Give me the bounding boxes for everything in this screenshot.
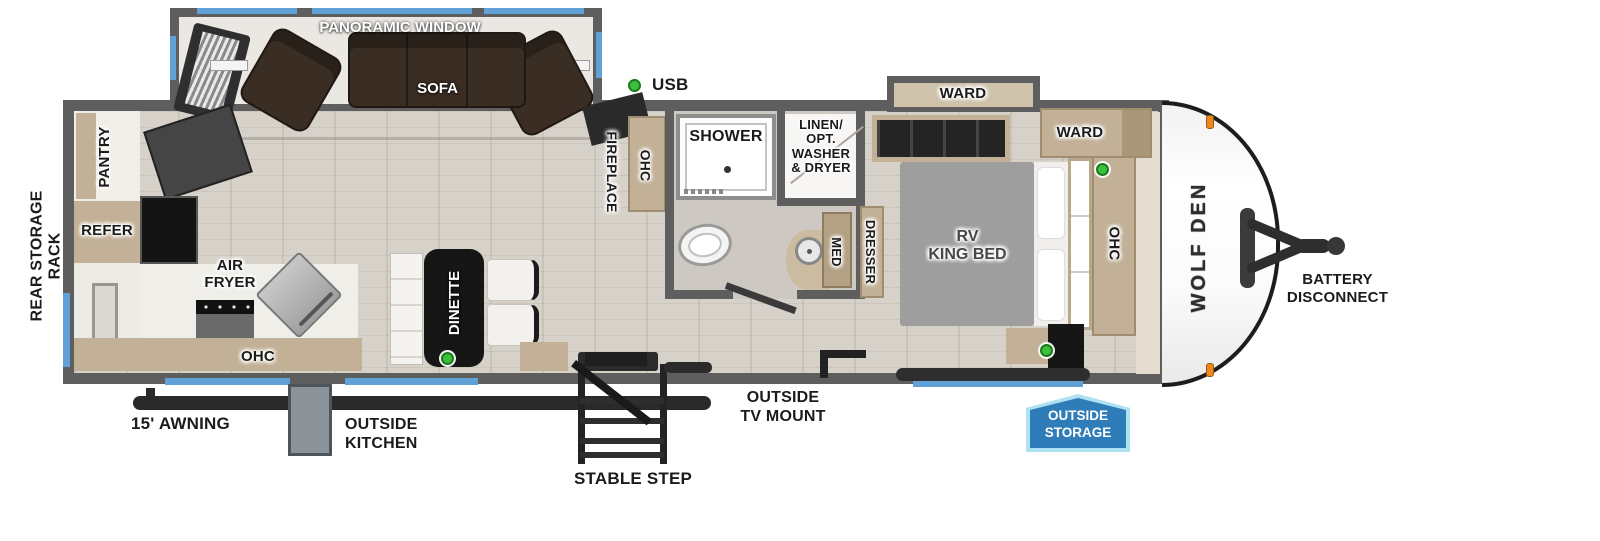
- usb-indicator-icon: [1096, 163, 1109, 176]
- outside-kitchen-label: OUTSIDE KITCHEN: [345, 416, 418, 454]
- pillow-top: [1037, 167, 1065, 239]
- outside-kitchen-compartment: [288, 384, 332, 456]
- slideout-window-right: [484, 8, 584, 14]
- shower-floor-texture: [684, 189, 726, 194]
- usb-indicator-icon: [441, 352, 454, 365]
- panoramic-window-label: PANORAMIC WINDOW: [295, 19, 505, 36]
- stable-step: [574, 352, 674, 467]
- bottom-window-dinette: [345, 378, 478, 385]
- linen-closet-label: LINEN/ OPT. WASHER & DRYER: [785, 118, 857, 175]
- outside-storage-badge: OUTSIDE STORAGE: [1026, 394, 1130, 452]
- ward-cabinet-label: WARD: [1043, 124, 1117, 141]
- kitchen-ohc-label: OHC: [228, 348, 288, 365]
- clearance-light-icon: [1206, 363, 1214, 377]
- bathroom-wall-left: [665, 111, 674, 299]
- kitchen-counter: [74, 338, 362, 371]
- rv-floorplan: SOFA PANORAMIC WINDOW USB PANTRY REFER A…: [0, 0, 1600, 541]
- pillow-bottom: [1037, 249, 1065, 321]
- shower-linen-divider-wall: [777, 111, 785, 206]
- step-rail-right: [660, 364, 667, 464]
- air-fryer-label: AIR FRYER: [193, 258, 267, 291]
- rear-storage-rack-label: REAR STORAGE RACK: [38, 174, 56, 339]
- shower: [676, 114, 776, 200]
- sink-drain: [807, 249, 812, 254]
- refrigerator: [140, 196, 198, 264]
- stable-step-label: STABLE STEP: [574, 469, 692, 489]
- rv-king-bed-label: RV KING BED: [905, 228, 1030, 264]
- bathroom-wall-bottom-right: [797, 290, 865, 299]
- tv-mount-bracket-arm: [820, 350, 828, 378]
- dresser-label: DRESSER: [864, 212, 878, 292]
- refer-label: REFER: [75, 222, 139, 239]
- usb-label: USB: [652, 75, 689, 95]
- awning-label: 15' AWNING: [131, 414, 230, 434]
- clearance-light-icon: [1206, 115, 1214, 129]
- bed-shelves: [1068, 158, 1092, 330]
- fireplace-label: FIREPLACE: [604, 126, 620, 218]
- outside-tv-mount-label: OUTSIDE TV MOUNT: [731, 389, 835, 427]
- usb-indicator-icon: [1040, 344, 1053, 357]
- brand-logo: WOLF DEN: [1187, 172, 1211, 322]
- sofa-label: SOFA: [360, 80, 515, 97]
- slideout-window-left: [197, 8, 297, 14]
- bedroom-ohc-label: OHC: [1107, 222, 1122, 266]
- step-grab-handle: [664, 362, 712, 373]
- speaker-left: [210, 60, 248, 71]
- slideout-window-side-left: [170, 36, 176, 80]
- ward-slide-label: WARD: [913, 85, 1013, 102]
- cooktop: [196, 300, 254, 314]
- stove: [196, 300, 254, 338]
- bedroom-window-awning: [896, 368, 1090, 381]
- step-tread: [580, 452, 664, 458]
- med-label: MED: [830, 232, 844, 272]
- battery-disconnect-label: BATTERY DISCONNECT: [1280, 271, 1395, 307]
- linen-bottom-wall: [782, 198, 865, 206]
- bottom-window-bedroom: [913, 380, 1083, 387]
- shower-drain: [724, 166, 731, 173]
- dinette-label: DINETTE: [445, 253, 463, 353]
- shower-label: SHOWER: [678, 128, 774, 146]
- dinette-bench: [390, 253, 423, 365]
- bathroom-wall-bottom-left: [665, 290, 733, 299]
- outside-storage-label: OUTSIDE STORAGE: [1026, 408, 1130, 442]
- dinette-chair-top: [487, 259, 539, 301]
- dinette-side-cabinet: [520, 342, 568, 371]
- usb-indicator-icon: [628, 79, 641, 92]
- step-tread: [580, 438, 664, 444]
- hall-ohc-label: OHC: [639, 146, 654, 186]
- ac-vent: [872, 115, 1010, 162]
- slideout-window-center: [312, 8, 472, 14]
- vanity-sink: [795, 237, 823, 265]
- step-rail-left: [578, 364, 585, 464]
- toilet-bowl: [686, 230, 724, 260]
- step-platform: [585, 352, 647, 366]
- bottom-window-kitchen: [165, 378, 290, 385]
- pantry-shelf: [76, 113, 96, 199]
- ward-cabinet-side: [1122, 110, 1150, 156]
- slideout-window-side-right: [596, 32, 602, 78]
- tv-screen: [185, 32, 240, 113]
- pantry-label: PANTRY: [95, 122, 113, 192]
- bedroom-storage-box: [1048, 324, 1084, 368]
- dinette-chair-bottom: [487, 304, 539, 346]
